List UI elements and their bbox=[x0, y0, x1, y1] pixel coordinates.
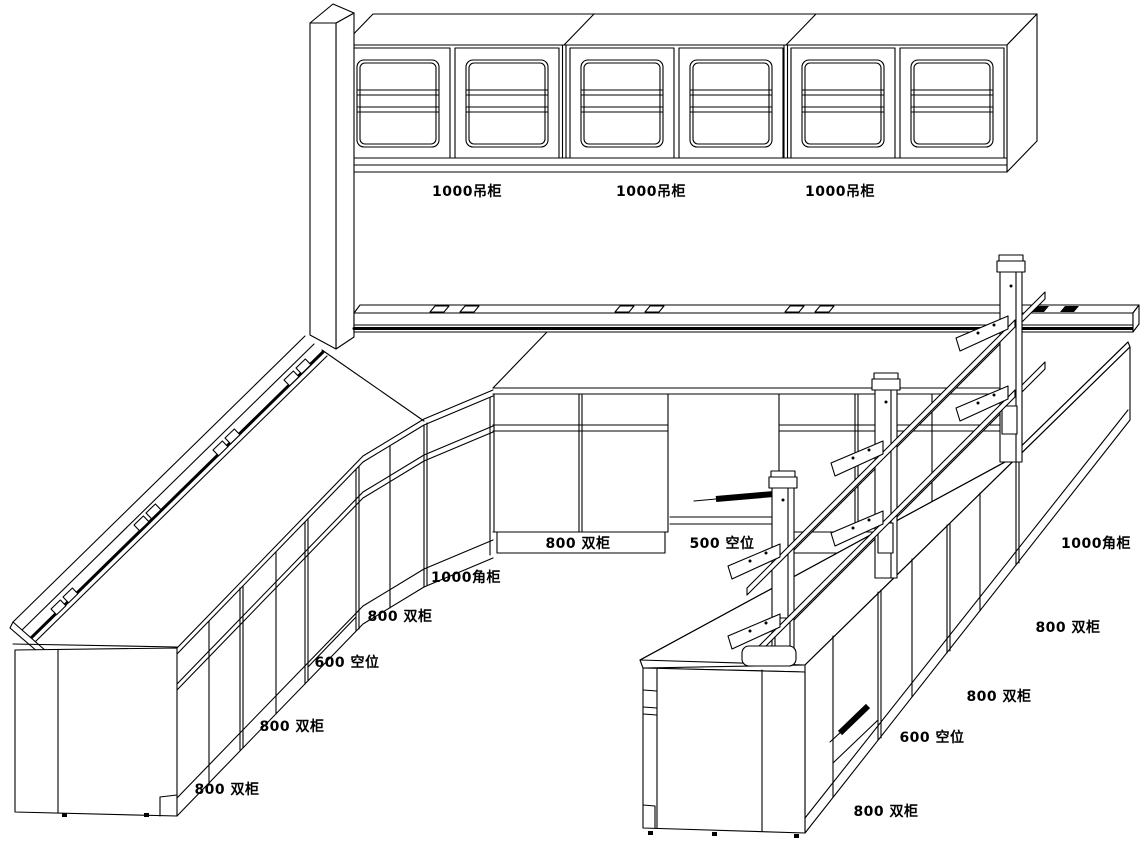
line-art bbox=[0, 0, 1148, 859]
label-island-600-gap: 600 空位 bbox=[899, 727, 964, 747]
left-bench bbox=[10, 336, 493, 817]
label-left-800-b: 800 双柜 bbox=[259, 716, 324, 736]
label-wall-cabinet-3: 1000吊柜 bbox=[805, 181, 875, 201]
label-wall-cabinet-2: 1000吊柜 bbox=[616, 181, 686, 201]
label-island-corner-1000: 1000角柜 bbox=[1061, 533, 1131, 553]
wall-pillar bbox=[310, 4, 354, 349]
label-left-800-c: 800 双柜 bbox=[194, 779, 259, 799]
shelf-post-middle bbox=[872, 373, 900, 578]
label-island-800-c: 800 双柜 bbox=[853, 801, 918, 821]
back-bench-gap-500 bbox=[670, 494, 777, 524]
label-island-800-b: 800 双柜 bbox=[966, 686, 1031, 706]
label-left-600-gap: 600 空位 bbox=[314, 652, 379, 672]
ledge-socket-outlets bbox=[51, 359, 311, 615]
label-back-bench-500-gap: 500 空位 bbox=[689, 533, 754, 553]
island-end-cabinet bbox=[643, 668, 805, 838]
label-left-corner-1000: 1000角柜 bbox=[431, 567, 501, 587]
label-left-800-a: 800 双柜 bbox=[367, 606, 432, 626]
label-island-800-a: 800 双柜 bbox=[1035, 617, 1100, 637]
label-wall-cabinet-1: 1000吊柜 bbox=[432, 181, 502, 201]
lab-furniture-layout-drawing: 1000吊柜 1000吊柜 1000吊柜 800 双柜 500 空位 1000角… bbox=[0, 0, 1148, 859]
label-back-bench-800: 800 双柜 bbox=[545, 533, 610, 553]
wall-cabinet-run bbox=[343, 14, 1037, 172]
